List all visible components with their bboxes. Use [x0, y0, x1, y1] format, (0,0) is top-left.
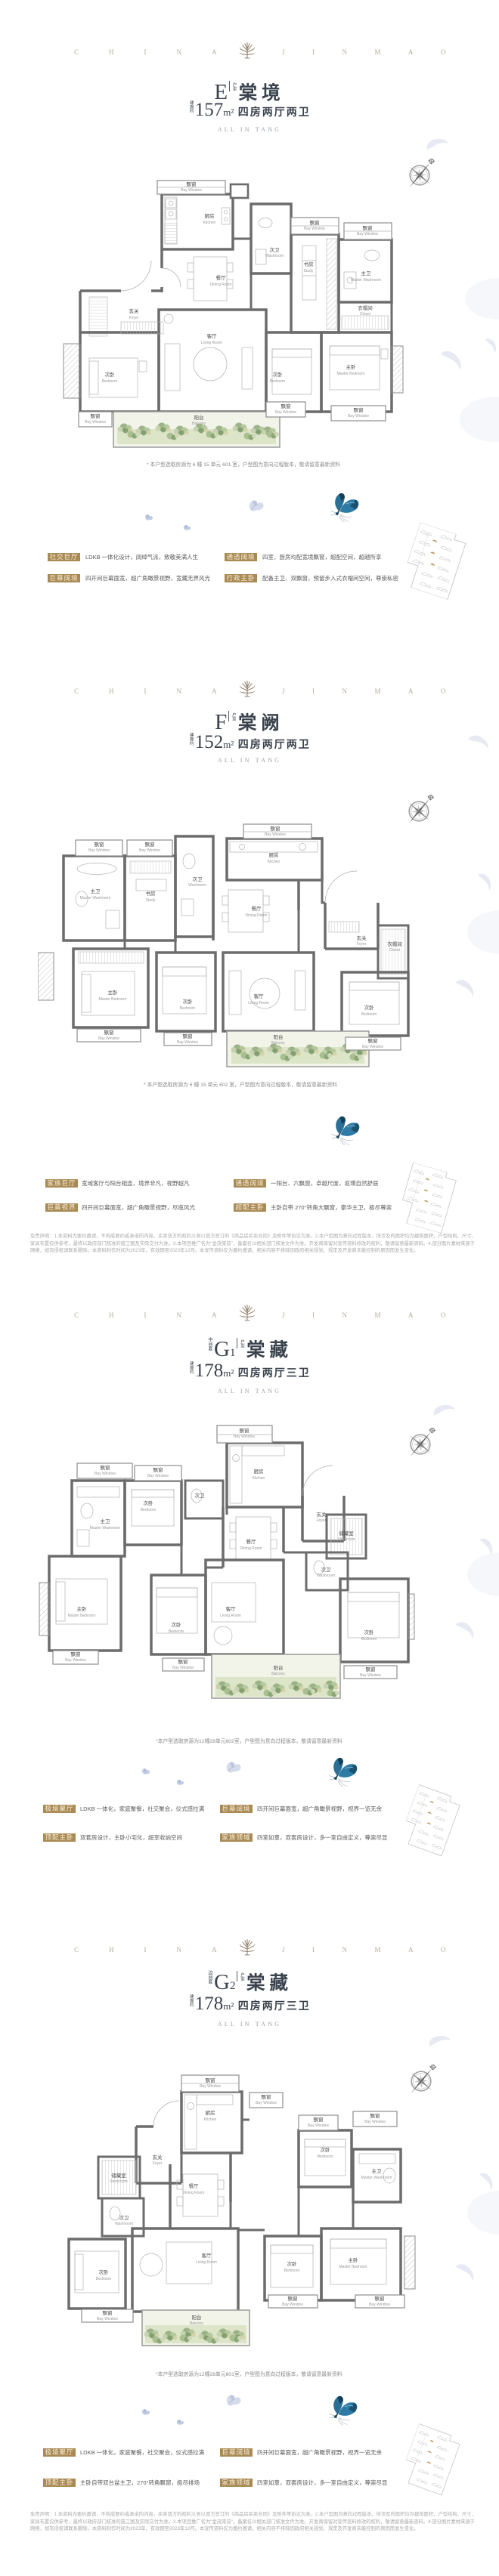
svg-text:Washroom: Washroom: [265, 254, 284, 258]
svg-text:Master Washroom: Master Washroom: [90, 1526, 121, 1530]
svg-text:Dining Room: Dining Room: [240, 1546, 262, 1551]
svg-text:次卧: 次卧: [273, 371, 284, 378]
svg-text:Dining Room: Dining Room: [183, 2191, 205, 2195]
svg-text:Bay Window: Bay Window: [357, 232, 378, 236]
svg-text:Bay Window: Bay Window: [282, 2303, 303, 2307]
svg-text:Master Bedroom: Master Bedroom: [337, 372, 365, 376]
svg-text:Study: Study: [304, 269, 314, 273]
svg-text:飘窗: 飘窗: [103, 2309, 113, 2316]
svg-text:Foyer: Foyer: [357, 942, 367, 947]
svg-text:次卫: 次卫: [195, 1492, 206, 1499]
svg-text:Bedroom: Bedroom: [102, 379, 117, 384]
svg-text:Foyer: Foyer: [153, 2161, 163, 2166]
svg-text:Bedroom: Bedroom: [180, 1006, 195, 1011]
svg-text:Bedroom: Bedroom: [361, 1012, 377, 1017]
svg-text:Bay Window: Bay Window: [308, 2124, 329, 2128]
svg-text:次卧: 次卧: [364, 1004, 375, 1011]
svg-text:Bedroom: Bedroom: [318, 2154, 333, 2159]
svg-text:主卧: 主卧: [346, 363, 357, 370]
svg-text:飘窗: 飘窗: [314, 2116, 324, 2123]
svg-text:Bay Window: Bay Window: [348, 414, 369, 419]
svg-text:Bay Window: Bay Window: [200, 2084, 221, 2089]
svg-text:阳台: 阳台: [274, 1033, 284, 1040]
svg-text:衣帽间: 衣帽间: [358, 304, 373, 311]
svg-text:次卧: 次卧: [183, 998, 194, 1005]
svg-text:Bay Window: Bay Window: [95, 1472, 116, 1476]
svg-text:Kitchen: Kitchen: [203, 221, 216, 225]
svg-text:Bay Window: Bay Window: [265, 832, 286, 837]
svg-text:Living Room: Living Room: [196, 2260, 217, 2265]
svg-text:飘窗: 飘窗: [71, 1651, 81, 1657]
svg-text:Kitchen: Kitchen: [253, 1476, 265, 1481]
svg-text:次卫: 次卫: [193, 876, 203, 882]
svg-text:Closet: Closet: [389, 948, 401, 953]
svg-text:飘窗: 飘窗: [187, 181, 197, 187]
svg-text:次卧: 次卧: [144, 1500, 154, 1506]
svg-text:Bay Window: Bay Window: [364, 2120, 386, 2124]
svg-text:Dining Room: Dining Room: [210, 283, 232, 287]
svg-text:Study: Study: [146, 898, 156, 903]
svg-text:Closet: Closet: [360, 312, 371, 317]
svg-text:飘窗: 飘窗: [368, 1037, 378, 1044]
svg-text:Master Bedroom: Master Bedroom: [99, 997, 127, 1002]
svg-text:飘窗: 飘窗: [183, 1033, 193, 1039]
svg-text:主卧: 主卧: [108, 989, 119, 996]
svg-text:Bay Window: Bay Window: [147, 1474, 169, 1478]
svg-text:Bay Window: Bay Window: [98, 1036, 119, 1041]
svg-text:Living Room: Living Room: [201, 341, 222, 345]
svg-text:厨房: 厨房: [205, 212, 215, 219]
svg-text:Bedroom: Bedroom: [169, 1629, 184, 1634]
svg-text:厨房: 厨房: [206, 2109, 215, 2116]
svg-text:Master Bedroom: Master Bedroom: [68, 1614, 96, 1618]
svg-text:餐厅: 餐厅: [252, 905, 262, 912]
svg-text:Bedroom: Bedroom: [361, 1637, 377, 1642]
svg-text:玄关: 玄关: [129, 307, 140, 314]
svg-text:次卫: 次卫: [119, 2214, 130, 2221]
svg-text:衣帽间: 衣帽间: [387, 941, 402, 947]
svg-text:Bay Window: Bay Window: [181, 188, 202, 193]
svg-text:Washroom: Washroom: [317, 1574, 335, 1578]
svg-text:主卫: 主卫: [101, 1518, 111, 1524]
svg-text:Bedroom: Bedroom: [270, 379, 285, 384]
svg-text:客厅: 客厅: [254, 993, 265, 999]
svg-text:次卧: 次卧: [172, 1621, 182, 1628]
svg-text:厨房: 厨房: [254, 1468, 264, 1475]
svg-text:餐厅: 餐厅: [246, 1538, 257, 1545]
svg-text:Master Washroom: Master Washroom: [361, 2176, 392, 2180]
svg-text:Bay Window: Bay Window: [85, 420, 106, 425]
svg-text:飘窗: 飘窗: [101, 1464, 110, 1471]
svg-text:玄关: 玄关: [357, 934, 367, 941]
svg-text:次卧: 次卧: [321, 2146, 331, 2153]
svg-text:飘窗: 飘窗: [370, 2112, 380, 2119]
svg-text:Storeroom: Storeroom: [110, 2179, 127, 2184]
svg-text:飘窗: 飘窗: [91, 412, 101, 419]
svg-text:次卫: 次卫: [270, 246, 280, 253]
svg-text:储藏室: 储藏室: [111, 2172, 126, 2179]
svg-text:飘窗: 飘窗: [363, 224, 373, 231]
svg-text:主卧: 主卧: [349, 2256, 359, 2263]
svg-text:Kitchen: Kitchen: [268, 860, 280, 864]
svg-text:次卧: 次卧: [287, 2260, 298, 2267]
svg-text:飘窗: 飘窗: [104, 1029, 114, 1036]
svg-text:飘窗: 飘窗: [288, 2295, 298, 2302]
svg-text:Bay Window: Bay Window: [256, 2101, 277, 2105]
svg-text:Foyer: Foyer: [129, 316, 139, 320]
svg-text:主卧: 主卧: [77, 1605, 88, 1612]
svg-text:Kitchen: Kitchen: [204, 2117, 217, 2122]
svg-text:Balcony: Balcony: [271, 1672, 285, 1676]
svg-text:客厅: 客厅: [207, 332, 218, 339]
svg-text:Storeroom: Storeroom: [337, 1537, 355, 1542]
svg-text:Bedroom: Bedroom: [284, 2269, 299, 2273]
svg-text:主卫: 主卫: [361, 270, 372, 276]
svg-text:Washroom: Washroom: [115, 2222, 133, 2226]
svg-text:飘窗: 飘窗: [153, 1466, 163, 1473]
svg-text:Bay Window: Bay Window: [362, 1045, 383, 1049]
svg-text:餐厅: 餐厅: [216, 274, 227, 281]
svg-text:飘窗: 飘窗: [262, 2093, 271, 2100]
svg-text:厨房: 厨房: [269, 851, 279, 858]
svg-text:Bay Window: Bay Window: [304, 227, 325, 231]
svg-text:玄关: 玄关: [317, 1511, 327, 1518]
svg-text:飘窗: 飘窗: [240, 1427, 249, 1434]
svg-text:飘窗: 飘窗: [375, 2295, 385, 2302]
svg-text:客厅: 客厅: [226, 1605, 237, 1612]
svg-text:Bay Window: Bay Window: [97, 2317, 118, 2321]
svg-text:Living Room: Living Room: [248, 1001, 269, 1005]
svg-text:Bay Window: Bay Window: [360, 1673, 381, 1678]
svg-text:次卧: 次卧: [364, 1629, 375, 1635]
svg-text:次卧: 次卧: [105, 371, 116, 378]
svg-text:Master Bedroom: Master Bedroom: [339, 2265, 367, 2269]
svg-text:Bay Window: Bay Window: [88, 848, 110, 853]
svg-text:Living Room: Living Room: [220, 1614, 241, 1618]
svg-text:阳台: 阳台: [194, 414, 204, 421]
svg-text:飘窗: 飘窗: [354, 406, 364, 413]
svg-text:阳台: 阳台: [192, 2314, 202, 2321]
svg-text:飘窗: 飘窗: [178, 1658, 188, 1665]
svg-text:主卫: 主卫: [91, 888, 101, 894]
svg-text:书房: 书房: [304, 261, 314, 267]
svg-text:Bay Window: Bay Window: [177, 1040, 198, 1045]
svg-text:飘窗: 飘窗: [145, 841, 155, 848]
svg-text:飘窗: 飘窗: [95, 841, 104, 848]
svg-text:飘窗: 飘窗: [310, 219, 320, 226]
svg-text:次卫: 次卫: [321, 1566, 332, 1573]
svg-text:餐厅: 餐厅: [189, 2182, 200, 2189]
svg-text:飘窗: 飘窗: [206, 2077, 215, 2083]
svg-text:主卫: 主卫: [372, 2167, 383, 2174]
svg-text:Master Washroom: Master Washroom: [351, 278, 382, 283]
svg-text:书房: 书房: [146, 890, 156, 897]
svg-text:Dining Room: Dining Room: [246, 913, 268, 918]
svg-text:Bay Window: Bay Window: [369, 2303, 390, 2307]
svg-text:飘窗: 飘窗: [281, 403, 291, 409]
svg-text:玄关: 玄关: [153, 2154, 163, 2161]
svg-text:飘窗: 飘窗: [271, 825, 280, 832]
svg-text:Bay Window: Bay Window: [275, 410, 296, 415]
svg-text:次卧: 次卧: [99, 2269, 110, 2275]
svg-text:Foyer: Foyer: [317, 1518, 327, 1523]
svg-text:Bay Window: Bay Window: [65, 1658, 86, 1663]
svg-text:Bay Window: Bay Window: [172, 1666, 194, 1670]
svg-text:Bay Window: Bay Window: [139, 848, 160, 853]
svg-text:Washroom: Washroom: [188, 883, 206, 888]
svg-text:储藏室: 储藏室: [339, 1530, 354, 1537]
svg-text:飘窗: 飘窗: [366, 1666, 376, 1673]
svg-text:Balcony: Balcony: [190, 2321, 203, 2326]
svg-text:客厅: 客厅: [202, 2252, 212, 2259]
svg-text:阳台: 阳台: [274, 1664, 284, 1671]
svg-text:Bedroom: Bedroom: [141, 1508, 156, 1512]
svg-text:Bedroom: Bedroom: [96, 2277, 111, 2281]
svg-text:Master Washroom: Master Washroom: [80, 896, 111, 900]
svg-text:Bay Window: Bay Window: [234, 1435, 255, 1439]
